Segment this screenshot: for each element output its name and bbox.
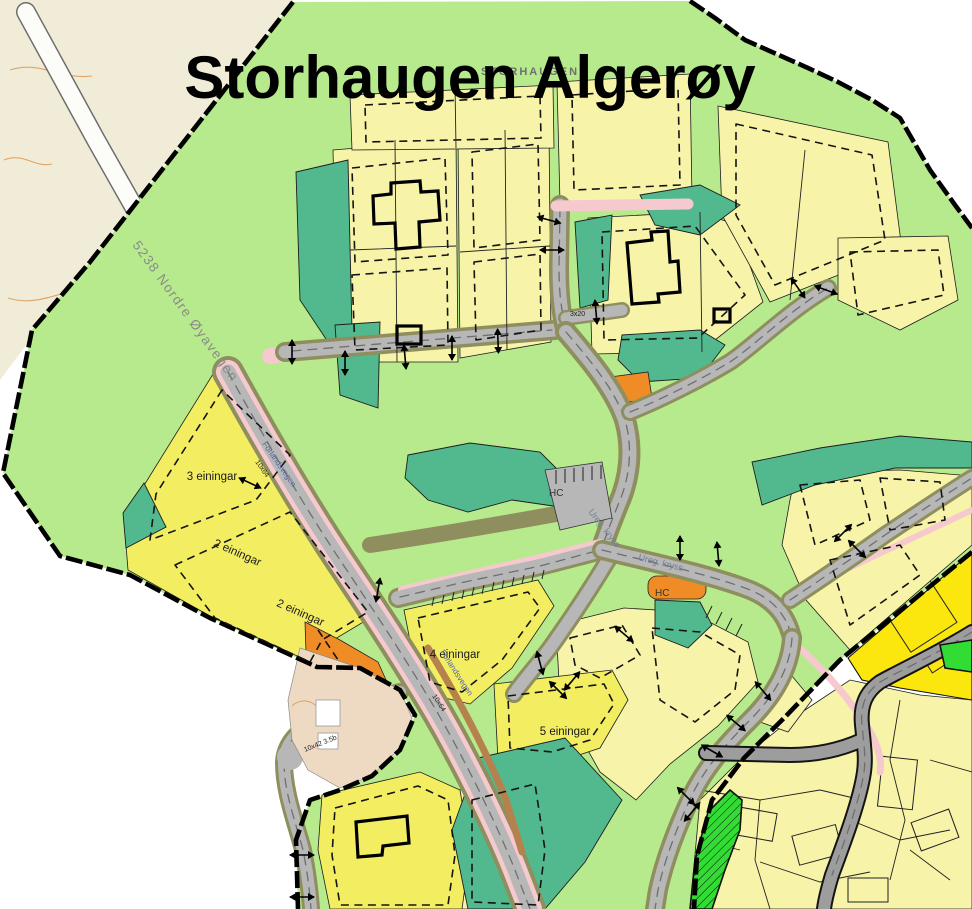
map-canvas: STORHAUGEN Storhaugen Algerøy 5238 Nordr… (0, 0, 972, 909)
dimension-label-4: 3x20 (570, 311, 585, 318)
hc-parking-label-1: HC (549, 488, 563, 499)
map-title: Storhaugen Algerøy (184, 44, 756, 111)
units-label-4: 4 einingar (430, 649, 481, 661)
existing-building (316, 700, 340, 726)
pedestrian-path (556, 204, 688, 206)
units-label-3: 3 einingar (187, 471, 238, 483)
units-label-5: 5 einingar (540, 726, 591, 738)
hc-parking-label-2: HC (655, 588, 669, 599)
zoning-plan-map: STORHAUGEN Storhaugen Algerøy 5238 Nordr… (0, 0, 972, 909)
